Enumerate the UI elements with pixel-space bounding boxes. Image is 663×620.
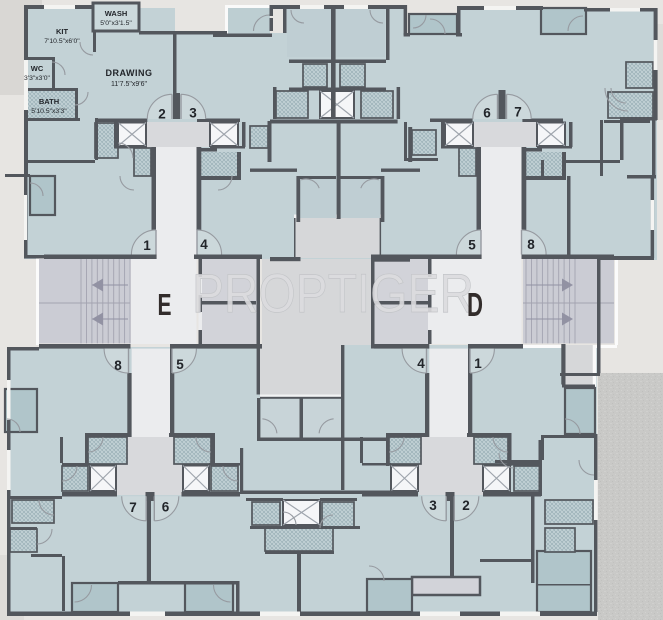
svg-text:7: 7: [129, 500, 137, 515]
svg-text:11'7.5"x9'6": 11'7.5"x9'6": [111, 81, 147, 88]
svg-text:DRAWING: DRAWING: [106, 68, 153, 78]
svg-text:2: 2: [462, 498, 470, 513]
svg-text:7: 7: [514, 105, 522, 120]
svg-text:PROPTIGER: PROPTIGER: [192, 262, 474, 324]
svg-text:WASH: WASH: [105, 9, 128, 18]
svg-text:3: 3: [429, 498, 437, 513]
svg-text:7'10.5"x6'0": 7'10.5"x6'0": [44, 38, 80, 45]
svg-text:1: 1: [143, 238, 151, 253]
svg-text:8: 8: [114, 358, 122, 373]
svg-text:2: 2: [158, 107, 166, 122]
svg-text:4: 4: [200, 237, 208, 252]
svg-text:D: D: [467, 286, 483, 323]
svg-text:E: E: [158, 287, 172, 322]
svg-text:6: 6: [162, 500, 170, 515]
svg-text:5'10.5"x3'3": 5'10.5"x3'3": [31, 108, 67, 115]
svg-text:5: 5: [468, 238, 476, 253]
svg-text:5: 5: [176, 357, 184, 372]
svg-text:6: 6: [483, 106, 491, 121]
svg-text:5'0"x3'1.5": 5'0"x3'1.5": [100, 20, 132, 27]
svg-text:WC: WC: [31, 64, 44, 73]
svg-text:3'3"x3'0": 3'3"x3'0": [24, 75, 51, 82]
svg-text:8: 8: [527, 237, 535, 252]
svg-text:4: 4: [417, 356, 425, 371]
svg-text:3: 3: [189, 106, 197, 121]
svg-text:BATH: BATH: [39, 97, 59, 106]
svg-text:KIT: KIT: [56, 27, 69, 36]
svg-text:1: 1: [474, 356, 482, 371]
